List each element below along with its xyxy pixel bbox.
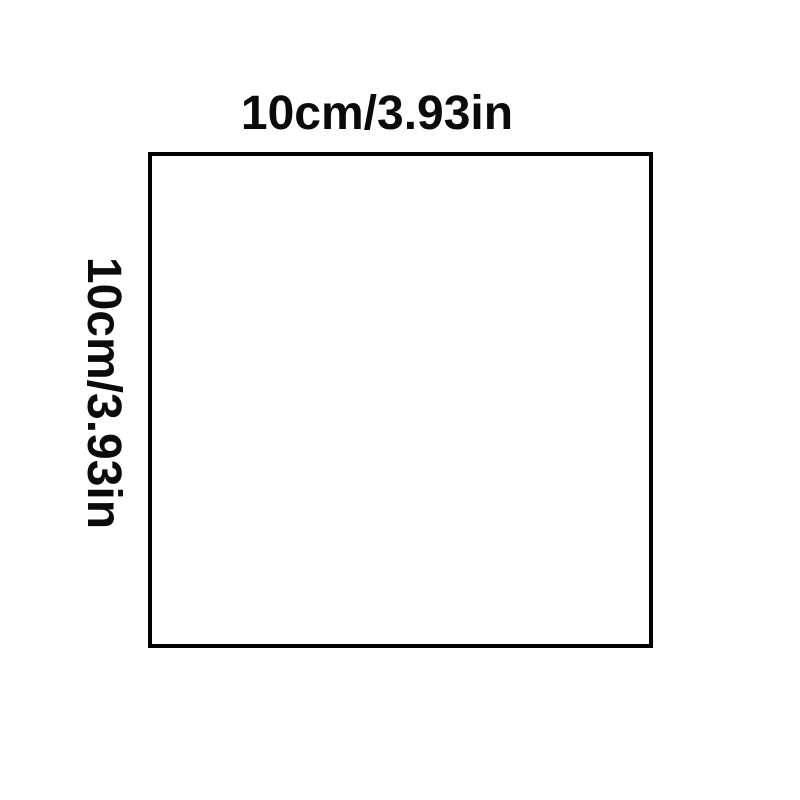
- width-dimension-label: 10cm/3.93in: [0, 90, 754, 138]
- height-dimension-label: 10cm/3.93in: [79, 257, 127, 529]
- dimension-diagram: 10cm/3.93in 10cm/3.93in: [0, 0, 800, 800]
- square-outline: [148, 152, 653, 648]
